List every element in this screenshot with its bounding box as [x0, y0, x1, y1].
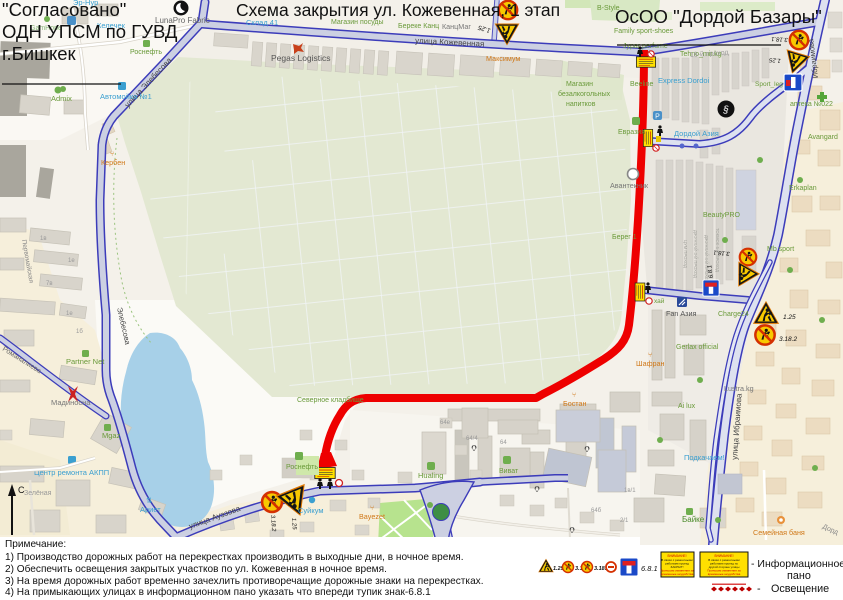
- svg-text:⑂: ⑂: [648, 352, 652, 359]
- svg-text:ЦУМ ПРОХОД: ЦУМ ПРОХОД: [683, 240, 688, 268]
- svg-text:1.25: 1.25: [768, 56, 781, 63]
- svg-text:1) Производство дорожных работ: 1) Производство дорожных работ на перекр…: [5, 551, 464, 563]
- svg-text:7в: 7в: [46, 281, 53, 287]
- svg-text:Fan Азия: Fan Азия: [666, 309, 696, 318]
- svg-text:хай: хай: [654, 297, 665, 305]
- svg-text:-: -: [757, 583, 761, 595]
- svg-text:Admix: Admix: [51, 94, 72, 103]
- svg-text:Mb sport: Mb sport: [767, 246, 794, 253]
- svg-text:Авантекник: Авантекник: [610, 181, 649, 190]
- svg-text:Подкачаем!: Подкачаем!: [684, 453, 725, 462]
- svg-text:1.25: 1.25: [783, 314, 796, 321]
- svg-text:Бостан: Бостан: [563, 399, 587, 408]
- svg-text:временные неудобства: временные неудобства: [661, 572, 694, 576]
- svg-text:Bayezet: Bayezet: [359, 512, 385, 521]
- svg-text:ОсОО "Дордой Базары": ОсОО "Дордой Базары": [615, 6, 822, 27]
- svg-text:3.18.2: 3.18.2: [779, 336, 797, 343]
- svg-text:3.18.1: 3.18.1: [771, 35, 788, 42]
- svg-text:64е: 64е: [440, 420, 451, 426]
- svg-text:§: §: [722, 105, 729, 116]
- svg-text:Кербен: Кербен: [101, 158, 125, 167]
- svg-text:2) Обеспечить освещения закрыт: 2) Обеспечить освещения закрытых участко…: [5, 563, 387, 575]
- svg-text:1б: 1б: [76, 329, 83, 335]
- svg-text:Евразия: Евразия: [618, 129, 645, 136]
- svg-text:Автомойка №1: Автомойка №1: [100, 92, 152, 101]
- svg-text:ДЖУНХАЙ-3-Й ПРОХОД: ДЖУНХАЙ-3-Й ПРОХОД: [693, 230, 698, 278]
- svg-text:Примечание:: Примечание:: [5, 539, 66, 550]
- svg-text:Схема закрытия ул. Кожевенная,: Схема закрытия ул. Кожевенная, 1 этап: [236, 0, 560, 20]
- svg-text:аптека №022: аптека №022: [790, 101, 833, 108]
- svg-text:Pegas Logistics: Pegas Logistics: [271, 53, 331, 63]
- svg-text:Mgaz: Mgaz: [102, 431, 121, 440]
- svg-text:Ai lux: Ai lux: [678, 403, 696, 410]
- svg-text:2/1: 2/1: [620, 518, 629, 524]
- svg-text:Мадиносна: Мадиносна: [51, 398, 91, 407]
- svg-text:временные неудобства: временные неудобства: [708, 572, 741, 576]
- svg-text:Северное кладбище: Северное кладбище: [297, 396, 364, 404]
- svg-text:64/4: 64/4: [466, 436, 478, 442]
- svg-text:P: P: [655, 114, 660, 121]
- svg-text:1в/1: 1в/1: [624, 488, 636, 494]
- svg-text:3.18.2: 3.18.2: [269, 515, 276, 533]
- svg-text:Роснефть: Роснефть: [130, 49, 162, 56]
- svg-text:Роснефть: Роснефть: [286, 464, 318, 471]
- svg-text:Суйкум: Суйкум: [298, 506, 324, 515]
- svg-text:напитков: напитков: [566, 101, 596, 108]
- svg-text:пано: пано: [787, 570, 811, 582]
- svg-text:1в: 1в: [40, 236, 47, 242]
- svg-text:Partner Net: Partner Net: [66, 357, 105, 366]
- svg-text:Hualing: Hualing: [418, 471, 443, 480]
- svg-text:Зелёная: Зелёная: [24, 490, 52, 497]
- svg-text:Береке Канц: Береке Канц: [398, 23, 439, 30]
- svg-text:64: 64: [500, 440, 507, 446]
- svg-text:Gerlax official: Gerlax official: [676, 344, 719, 351]
- svg-text:Lustra.kg: Lustra.kg: [724, 384, 754, 393]
- svg-text:- Информационное: - Информационное: [751, 558, 843, 570]
- svg-text:Семейная баня: Семейная баня: [753, 528, 805, 537]
- svg-text:Jypar perfume: Jypar perfume: [623, 43, 668, 50]
- svg-text:безалкогольных: безалкогольных: [558, 90, 611, 98]
- svg-text:3) На время дорожных работ вре: 3) На время дорожных работ временно заче…: [5, 575, 484, 587]
- svg-text:Family sport-shoes: Family sport-shoes: [614, 28, 674, 35]
- svg-text:Освещение: Освещение: [771, 583, 829, 595]
- svg-text:Магазин: Магазин: [566, 81, 593, 88]
- svg-text:BeautyPRO: BeautyPRO: [703, 212, 741, 219]
- svg-text:Sport_leg: Sport_leg: [755, 81, 783, 88]
- svg-text:Дордой Азия: Дордой Азия: [674, 129, 719, 138]
- svg-text:"Согласовано": "Согласовано": [2, 0, 126, 20]
- svg-text:⑂: ⑂: [110, 151, 114, 158]
- svg-text:Ариет: Ариет: [140, 505, 161, 514]
- svg-text:ОДН УПСМ по ГУВД: ОДН УПСМ по ГУВД: [2, 21, 178, 42]
- svg-text:6.8.1: 6.8.1: [641, 564, 658, 573]
- svg-text:Шафран: Шафран: [636, 359, 664, 368]
- svg-text:г.Бишкек: г.Бишкек: [2, 43, 77, 64]
- svg-text:Avangard: Avangard: [808, 134, 838, 141]
- svg-text:Charge24: Charge24: [718, 311, 749, 318]
- svg-text:⑂: ⑂: [572, 392, 576, 399]
- svg-text:КанцМаг: КанцМаг: [442, 22, 471, 31]
- svg-text:Виват: Виват: [499, 468, 519, 475]
- svg-text:Erkaplan: Erkaplan: [789, 185, 817, 192]
- svg-text:1е: 1е: [68, 258, 75, 264]
- svg-text:Express Dordoi: Express Dordoi: [658, 76, 710, 85]
- svg-text:Байке: Байке: [682, 515, 705, 524]
- svg-text:1е: 1е: [66, 311, 73, 317]
- svg-text:С: С: [18, 485, 25, 495]
- svg-text:Магазин посуды: Магазин посуды: [331, 19, 384, 26]
- svg-text:⑂: ⑂: [370, 505, 374, 512]
- svg-text:4) На примыкающих улицах в инф: 4) На примыкающих улицах в информационно…: [5, 586, 431, 598]
- svg-text:Beeline: Beeline: [630, 81, 653, 88]
- svg-text:Максимум: Максимум: [486, 54, 520, 63]
- svg-text:1.25: 1.25: [290, 518, 297, 531]
- svg-text:64б: 64б: [591, 508, 602, 514]
- svg-text:⇅: ⇅: [146, 496, 153, 505]
- svg-text:Берег 1: Берег 1: [612, 234, 637, 241]
